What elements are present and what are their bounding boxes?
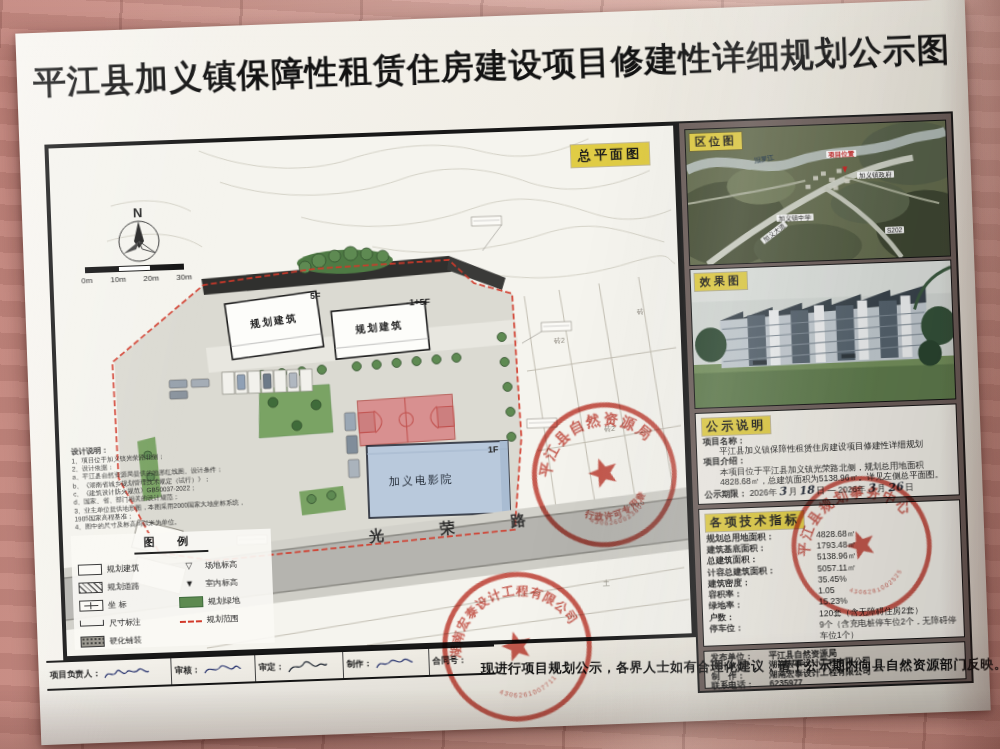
legend-dimension-icon — [80, 620, 104, 627]
legend-label: 尺寸标注 — [109, 616, 141, 628]
legend-label: 室内标高 — [205, 576, 237, 588]
svg-text:4306281002525: 4306281002525 — [847, 566, 908, 603]
stamp-star-icon — [842, 526, 879, 562]
north-label: N — [133, 205, 143, 220]
publisher-key: 联系电话： — [711, 679, 769, 690]
stamp-serial: 4306281002525 — [847, 566, 908, 603]
location-map-panel: 区位图 项目位置 汨罗江 加义镇政府 加义镇中学 加义大道 S202 — [684, 120, 951, 267]
building-right-floors: -1+5F — [406, 297, 430, 308]
sig-project-lead: 项目负责人： — [46, 658, 172, 689]
basketball-court — [357, 394, 455, 446]
legend-green-space-icon — [179, 596, 203, 608]
stamp-serial: 4306261007711 — [497, 672, 561, 705]
legend: 图 例 规划建筑 规划道路 坐 标 尺寸标注 硬化铺装 场地标高 室内标高 规划… — [71, 529, 275, 650]
north-arrow-icon — [118, 221, 159, 262]
legend-paving-icon — [80, 635, 104, 647]
signature-scribble — [202, 661, 243, 678]
photo-background: 平江县加义镇保障性租赁住房建设项目修建性详细规划公示图 — [0, 0, 1000, 749]
legend-title: 图 例 — [134, 533, 209, 555]
parcel-label: 土 — [603, 578, 610, 588]
site-plan-map: 总平面图 N 0m 10m 20m 30m 规划建筑 5F 规划建筑 -1+5F… — [44, 121, 695, 660]
stamp-star-icon — [498, 627, 535, 663]
location-map-label: 区位图 — [689, 132, 742, 151]
legend-boundary-icon — [180, 620, 202, 623]
period-label: 公示期限： — [704, 488, 747, 500]
sig-label: 审定： — [258, 661, 284, 674]
rendering-label: 效果图 — [695, 272, 748, 291]
scale-tick: 10m — [110, 275, 126, 285]
scale-tick: 20m — [143, 274, 159, 284]
scale-tick: 30m — [176, 272, 192, 282]
project-location-marker: 项目位置 — [826, 150, 856, 158]
sig-label: 项目负责人： — [50, 668, 101, 682]
legend-label: 规划道路 — [107, 580, 139, 592]
signature-scribble — [374, 654, 415, 671]
sig-label: 审核： — [175, 664, 201, 677]
signature-scribble — [286, 658, 329, 676]
sig-reviewer: 审核： — [171, 655, 256, 684]
signature-scribble — [102, 664, 151, 682]
sig-approver: 审定： — [255, 652, 344, 681]
legend-label: 规划范围 — [207, 612, 239, 624]
legend-label: 硬化铺装 — [109, 634, 141, 646]
period-text: 2026年 — [749, 487, 777, 498]
notice-label: 公示说明 — [702, 416, 771, 435]
parcel-label: 砖2 — [554, 336, 565, 346]
site-plan-label: 总平面图 — [571, 143, 650, 168]
legend-site-elevation-icon — [178, 561, 200, 571]
building-left-floors: 5F — [310, 291, 321, 301]
town-hall-label: 加义镇政府 — [857, 171, 894, 179]
legend-label: 坐 标 — [108, 598, 127, 610]
stamp-star-icon — [585, 453, 622, 489]
highway-label: S202 — [885, 226, 904, 234]
legend-indoor-elevation-icon — [178, 579, 200, 589]
planning-notice-poster: 平江县加义镇保障性租赁住房建设项目修建性详细规划公示图 — [15, 0, 990, 745]
cinema-label: 加义电影院 — [389, 472, 455, 489]
parcel-label: 砖 — [637, 307, 644, 317]
sig-label: 制作： — [346, 658, 372, 671]
legend-label: 规划建筑 — [107, 562, 139, 574]
legend-planned-building-icon — [78, 563, 102, 575]
legend-label: 规划绿地 — [208, 594, 240, 606]
poster-title: 平江县加义镇保障性租赁住房建设项目修建性详细规划公示图 — [16, 27, 967, 107]
scale-tick: 0m — [81, 276, 92, 285]
legend-planned-road-icon — [78, 581, 102, 593]
cinema-floors: 1F — [488, 444, 499, 454]
indicator-key: 停车位： — [709, 619, 820, 645]
legend-coordinate-icon — [79, 599, 103, 611]
rendering-panel: 效果图 — [689, 260, 956, 410]
design-notes: 设计说明： 1、项目位于加义镇光荣路北侧； 2、设计依据： a、平江县自然资源局… — [71, 438, 251, 532]
legend-label: 场地标高 — [205, 558, 237, 570]
sig-maker: 制作： — [343, 649, 430, 678]
svg-text:4306261007711: 4306261007711 — [497, 672, 561, 705]
publisher-value: 6235977 — [769, 678, 802, 689]
